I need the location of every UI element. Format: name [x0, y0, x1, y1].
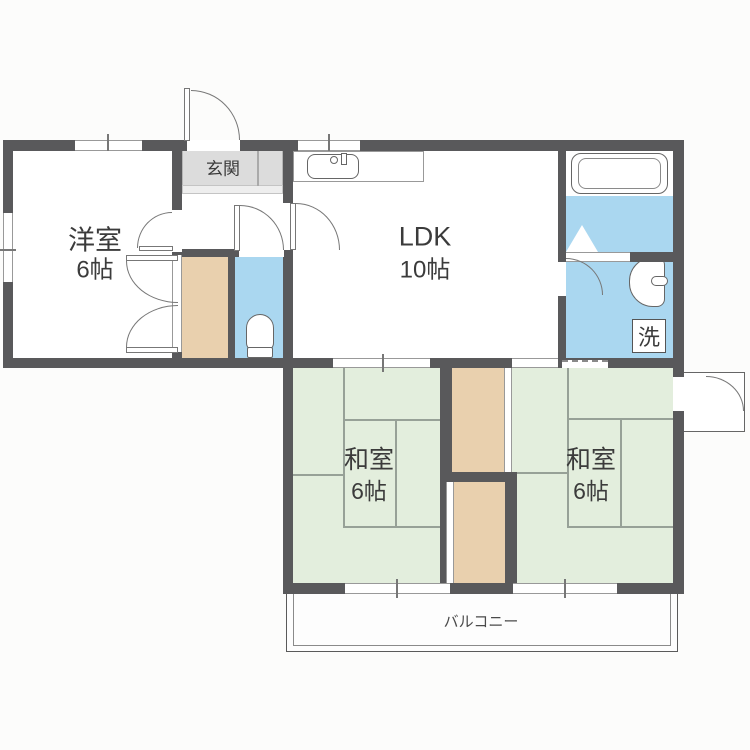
washbasin-handle-icon: [651, 276, 668, 286]
genkan-step: [182, 185, 283, 194]
closet-lower-door-leaf: [126, 347, 178, 353]
tatami-line: [293, 474, 343, 476]
window-tick: [0, 249, 16, 251]
hall-yoshitsu-door-opening: [172, 210, 182, 252]
washitsu-left-size-label: 6帖: [351, 472, 387, 506]
faucet-handle-icon: [341, 153, 347, 165]
tatami-line: [395, 419, 397, 527]
toilet-bowl: [246, 314, 274, 351]
entrance-door-leaf: [184, 88, 190, 141]
wall-right: [673, 140, 684, 594]
yoshitsu-size-label: 6帖: [76, 250, 113, 285]
window-yoshitsu-top: [75, 140, 142, 151]
closet-lower: [454, 482, 505, 583]
wall-closet-toilet: [228, 249, 235, 358]
genkan-divider-line: [257, 146, 259, 186]
entrance-door-arc: [191, 90, 240, 140]
ldk-name-label: LDK: [399, 222, 452, 253]
wall-bottom: [283, 583, 684, 594]
ldk-size-label: 10帖: [400, 250, 451, 285]
window-tick: [328, 134, 330, 151]
laundry-label: 洗: [638, 320, 660, 352]
opening-ldk-washitsu-right: [512, 358, 558, 368]
toilet-door-opening: [239, 249, 284, 257]
closet-upper: [452, 368, 504, 472]
closet-lower-sliding-door: [446, 482, 454, 583]
closet-upper-sliding-door: [504, 368, 512, 472]
tatami-line: [343, 526, 440, 528]
washitsu-right-size-label: 6帖: [573, 472, 609, 506]
closet-hall: [182, 255, 228, 358]
tatami-line: [567, 526, 673, 528]
toilet-door-leaf: [234, 205, 240, 251]
wall-closet-col-lowerright: [505, 472, 517, 594]
faucet-icon: [330, 156, 338, 164]
tatami-line: [343, 419, 440, 421]
window-tick: [107, 134, 109, 151]
floor-plan-canvas: 玄関 洋室 6帖 LDK 10帖 和室 6帖 和室 6帖 洗 バルコニー: [0, 0, 750, 750]
washroom-door-opening: [558, 262, 566, 296]
yoshitsu-door-leaf: [139, 246, 173, 251]
exterior-door-opening: [673, 377, 684, 411]
washitsu-left-name-label: 和室: [344, 440, 394, 476]
toilet-tank: [247, 347, 273, 358]
window-washitsu-left-bottom: [345, 583, 450, 594]
closet-upper-door-leaf: [126, 255, 178, 261]
washitsu-right-name-label: 和室: [566, 440, 616, 476]
folding-bath-door-icon: [566, 225, 598, 252]
entrance-door-opening: [187, 140, 240, 151]
tatami-line: [512, 472, 567, 474]
balcony-label: バルコニー: [444, 611, 519, 632]
bathtub-inner: [578, 158, 661, 189]
genkan-label: 玄関: [206, 155, 240, 180]
tatami-line: [620, 418, 622, 527]
wall-lower-left: [283, 358, 293, 594]
window-tick: [396, 579, 398, 598]
opening-dashed-washroom-washitsu: [562, 360, 608, 368]
window-tick: [382, 354, 384, 372]
wall-closet-col-upper: [440, 368, 452, 482]
window-tick: [564, 579, 566, 598]
ldk-door-leaf: [290, 203, 296, 250]
window-yoshitsu-left: [3, 213, 13, 282]
